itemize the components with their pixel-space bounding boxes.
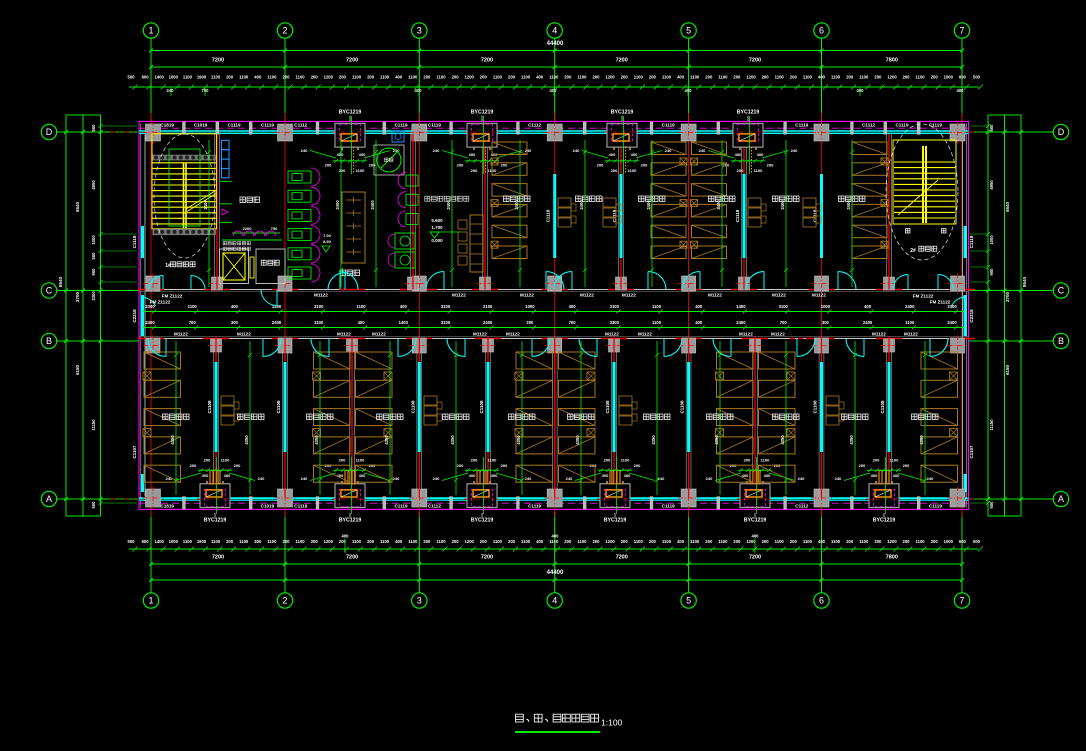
- svg-text:400: 400: [552, 534, 560, 539]
- svg-text:200: 200: [744, 458, 751, 463]
- svg-text:200: 200: [480, 539, 488, 544]
- svg-text:240: 240: [258, 476, 265, 481]
- svg-text:400: 400: [358, 320, 366, 325]
- svg-text:200: 200: [226, 75, 234, 80]
- svg-text:1100: 1100: [183, 75, 193, 80]
- svg-text:1100: 1100: [296, 539, 306, 544]
- svg-text:7200: 7200: [749, 555, 761, 561]
- svg-text:1: 1: [148, 26, 153, 36]
- svg-text:200: 200: [604, 458, 611, 463]
- svg-text:400: 400: [569, 304, 577, 309]
- svg-text:400: 400: [695, 304, 703, 309]
- svg-text:400: 400: [337, 473, 344, 478]
- svg-text:1400: 1400: [155, 75, 165, 80]
- svg-text:C1119: C1119: [929, 123, 942, 128]
- svg-text:1100: 1100: [690, 75, 700, 80]
- svg-text:2100: 2100: [483, 304, 493, 309]
- svg-text:200: 200: [641, 163, 648, 168]
- svg-text:7200: 7200: [616, 58, 628, 64]
- svg-text:C1119: C1119: [261, 123, 274, 128]
- svg-text:3100: 3100: [610, 304, 620, 309]
- svg-text:500: 500: [973, 75, 981, 80]
- svg-text:900: 900: [989, 268, 994, 276]
- svg-text:1100: 1100: [634, 75, 644, 80]
- svg-text:3: 3: [417, 26, 422, 36]
- svg-text:M1122: M1122: [580, 293, 594, 298]
- svg-text:200: 200: [339, 168, 346, 173]
- svg-text:4350: 4350: [714, 435, 719, 445]
- svg-text:M1122: M1122: [506, 332, 520, 337]
- svg-text:7200: 7200: [749, 58, 761, 64]
- svg-text:3100: 3100: [779, 304, 789, 309]
- svg-text:4: 4: [552, 26, 557, 36]
- svg-text:1200: 1200: [465, 75, 475, 80]
- svg-text:200: 200: [593, 539, 601, 544]
- svg-text:400: 400: [624, 473, 631, 478]
- svg-text:700: 700: [189, 320, 197, 325]
- svg-text:200: 200: [903, 539, 911, 544]
- svg-text:200: 200: [508, 75, 516, 80]
- svg-text:240: 240: [525, 148, 532, 153]
- svg-text:750: 750: [271, 226, 278, 231]
- svg-text:1100: 1100: [211, 75, 221, 80]
- svg-text:1200: 1200: [605, 539, 615, 544]
- svg-text:200: 200: [705, 539, 713, 544]
- svg-text:1100: 1100: [916, 75, 926, 80]
- svg-text:7200: 7200: [616, 555, 628, 561]
- svg-text:200: 200: [423, 539, 431, 544]
- svg-text:BYC1219: BYC1219: [737, 110, 760, 116]
- svg-text:C1118: C1118: [546, 209, 551, 222]
- svg-text:1200: 1200: [324, 539, 334, 544]
- svg-text:1900: 1900: [197, 75, 207, 80]
- svg-text:600: 600: [142, 75, 150, 80]
- svg-text:200: 200: [874, 75, 882, 80]
- svg-text:200: 200: [480, 75, 488, 80]
- svg-text:C1819: C1819: [160, 123, 174, 128]
- svg-text:1100: 1100: [859, 539, 869, 544]
- svg-text:2#: 2#: [910, 248, 916, 254]
- svg-text:1100: 1100: [267, 75, 277, 80]
- svg-text:300: 300: [822, 320, 830, 325]
- svg-text:1000: 1000: [989, 235, 994, 245]
- svg-text:200: 200: [737, 168, 744, 173]
- svg-text:4350: 4350: [575, 435, 580, 445]
- svg-text:M1122: M1122: [174, 332, 188, 337]
- svg-text:BYC1219: BYC1219: [873, 518, 896, 524]
- svg-text:7200: 7200: [346, 555, 358, 561]
- svg-text:200: 200: [452, 75, 460, 80]
- svg-text:M1122: M1122: [314, 293, 328, 298]
- svg-text:2300: 2300: [91, 291, 96, 301]
- svg-text:1100: 1100: [628, 168, 637, 173]
- svg-text:1:100: 1:100: [601, 718, 623, 728]
- svg-text:400: 400: [893, 473, 900, 478]
- svg-text:400: 400: [757, 152, 764, 157]
- svg-text:200: 200: [234, 463, 241, 468]
- svg-text:200: 200: [204, 458, 211, 463]
- svg-text:2400: 2400: [863, 320, 873, 325]
- svg-text:1100: 1100: [859, 75, 869, 80]
- svg-text:400: 400: [469, 473, 476, 478]
- svg-text:1100: 1100: [352, 539, 362, 544]
- svg-text:1200: 1200: [746, 75, 756, 80]
- svg-text:1100: 1100: [521, 75, 531, 80]
- svg-text:A: A: [1058, 494, 1064, 504]
- svg-text:4350: 4350: [384, 435, 389, 445]
- svg-text:400: 400: [359, 152, 366, 157]
- svg-text:C1108: C1108: [207, 400, 212, 414]
- svg-text:1000: 1000: [525, 304, 535, 309]
- svg-text:1400: 1400: [736, 304, 746, 309]
- svg-text:1100: 1100: [634, 539, 644, 544]
- svg-text:200: 200: [526, 320, 534, 325]
- svg-text:300: 300: [231, 320, 239, 325]
- svg-text:1100: 1100: [652, 320, 662, 325]
- svg-text:7200: 7200: [212, 58, 224, 64]
- svg-text:1100: 1100: [436, 75, 446, 80]
- svg-text:1100: 1100: [803, 539, 813, 544]
- svg-text:400: 400: [395, 75, 403, 80]
- svg-text:4350: 4350: [780, 435, 785, 445]
- svg-text:200: 200: [190, 463, 197, 468]
- svg-text:BYC1219: BYC1219: [471, 518, 494, 524]
- svg-text:8540: 8540: [1022, 276, 1027, 287]
- svg-text:2300: 2300: [145, 304, 155, 309]
- svg-text:200: 200: [311, 539, 319, 544]
- svg-text:C1107: C1107: [969, 445, 974, 459]
- svg-text:1400: 1400: [155, 539, 165, 544]
- svg-text:1100: 1100: [621, 458, 630, 463]
- svg-text:500: 500: [989, 124, 994, 132]
- svg-text:1200: 1200: [887, 75, 897, 80]
- svg-text:M1122: M1122: [520, 293, 534, 298]
- svg-text:200: 200: [339, 75, 347, 80]
- svg-text:5: 5: [686, 596, 691, 606]
- svg-text:200: 200: [762, 75, 770, 80]
- svg-text:200: 200: [767, 163, 774, 168]
- svg-text:8540: 8540: [58, 276, 63, 287]
- svg-text:D: D: [1058, 127, 1065, 137]
- svg-text:BYC1219: BYC1219: [204, 518, 227, 524]
- svg-text:M1122: M1122: [772, 293, 786, 298]
- svg-text:1100: 1100: [408, 75, 418, 80]
- svg-text:1100: 1100: [357, 304, 367, 309]
- svg-text:200: 200: [931, 539, 939, 544]
- svg-text:1100: 1100: [652, 304, 662, 309]
- svg-text:200: 200: [564, 75, 572, 80]
- svg-text:4350: 4350: [849, 435, 854, 445]
- svg-text:7200: 7200: [481, 58, 493, 64]
- svg-text:500: 500: [91, 252, 96, 260]
- svg-text:1100: 1100: [549, 539, 559, 544]
- svg-text:4350: 4350: [651, 435, 656, 445]
- svg-text:1100: 1100: [662, 539, 672, 544]
- svg-text:C1119: C1119: [662, 504, 675, 509]
- svg-text:BYC1219: BYC1219: [471, 110, 494, 116]
- svg-text:400: 400: [491, 473, 498, 478]
- svg-text:3100: 3100: [441, 320, 451, 325]
- svg-text:2400: 2400: [446, 200, 451, 210]
- svg-text:4350: 4350: [919, 435, 924, 445]
- svg-text:2: 2: [282, 26, 287, 36]
- svg-text:400: 400: [871, 473, 878, 478]
- svg-text:200: 200: [325, 163, 332, 168]
- svg-text:200: 200: [733, 539, 741, 544]
- svg-text:200: 200: [790, 75, 798, 80]
- svg-text:240: 240: [573, 148, 580, 153]
- svg-text:1100: 1100: [690, 539, 700, 544]
- svg-text:6540: 6540: [1005, 201, 1010, 212]
- svg-text:3100: 3100: [441, 304, 451, 309]
- svg-text:2700: 2700: [1005, 291, 1010, 302]
- svg-text:500: 500: [91, 501, 96, 509]
- svg-text:900: 900: [91, 268, 96, 276]
- svg-text:1100: 1100: [831, 75, 841, 80]
- svg-text:400: 400: [735, 152, 742, 157]
- svg-text:44400: 44400: [547, 570, 564, 576]
- svg-text:M1122: M1122: [605, 332, 619, 337]
- svg-text:7800: 7800: [886, 555, 898, 561]
- svg-text:240: 240: [393, 476, 400, 481]
- svg-text:200: 200: [471, 168, 478, 173]
- svg-text:240: 240: [927, 476, 934, 481]
- svg-text:C1119: C1119: [428, 123, 441, 128]
- svg-text:2400: 2400: [905, 304, 915, 309]
- svg-text:400: 400: [224, 473, 231, 478]
- svg-text:400: 400: [631, 152, 638, 157]
- svg-text:1100: 1100: [356, 458, 365, 463]
- svg-text:C1108: C1108: [276, 400, 281, 414]
- svg-text:11150: 11150: [989, 419, 994, 431]
- svg-text:200: 200: [903, 75, 911, 80]
- svg-text:1100: 1100: [493, 75, 503, 80]
- svg-text:C1112: C1112: [862, 123, 875, 128]
- svg-text:200: 200: [367, 539, 375, 544]
- svg-text:6540: 6540: [75, 201, 80, 212]
- svg-text:BYC1219: BYC1219: [744, 518, 767, 524]
- svg-text:1100: 1100: [267, 539, 277, 544]
- svg-text:6: 6: [819, 596, 824, 606]
- svg-text:200: 200: [471, 458, 478, 463]
- svg-text:1100: 1100: [221, 458, 230, 463]
- svg-text:500: 500: [989, 501, 994, 509]
- svg-text:1100: 1100: [239, 75, 249, 80]
- svg-text:M1122: M1122: [739, 332, 753, 337]
- svg-text:6150: 6150: [75, 364, 80, 375]
- svg-text:C1119: C1119: [227, 123, 240, 128]
- svg-text:C1119: C1119: [929, 504, 942, 509]
- svg-text:6150: 6150: [1005, 364, 1010, 375]
- svg-text:1200: 1200: [887, 539, 897, 544]
- svg-text:200: 200: [762, 539, 770, 544]
- svg-text:240: 240: [791, 148, 798, 153]
- svg-text:M1122: M1122: [904, 332, 918, 337]
- svg-text:1400: 1400: [399, 320, 409, 325]
- svg-text:400: 400: [254, 539, 262, 544]
- svg-text:C1112: C1112: [795, 504, 808, 509]
- svg-text:BYC1219: BYC1219: [604, 518, 627, 524]
- svg-text:200: 200: [931, 75, 939, 80]
- svg-text:1100: 1100: [183, 539, 193, 544]
- svg-text:400: 400: [202, 473, 209, 478]
- svg-text:200: 200: [508, 539, 516, 544]
- svg-text:1000: 1000: [944, 75, 954, 80]
- svg-text:C: C: [46, 286, 53, 296]
- svg-text:M1122: M1122: [638, 332, 652, 337]
- svg-text:600: 600: [142, 539, 150, 544]
- svg-text:1100: 1100: [493, 539, 503, 544]
- svg-text:1100: 1100: [356, 168, 365, 173]
- svg-text:M1122: M1122: [771, 332, 785, 337]
- svg-text:M1122: M1122: [872, 332, 886, 337]
- svg-text:200: 200: [457, 463, 464, 468]
- svg-text:2400: 2400: [514, 200, 519, 210]
- svg-text:500: 500: [128, 75, 136, 80]
- svg-text:C1107: C1107: [132, 445, 137, 459]
- svg-text:7200: 7200: [346, 58, 358, 64]
- svg-text:400: 400: [469, 152, 476, 157]
- svg-text:1100: 1100: [718, 539, 728, 544]
- svg-text:7200: 7200: [212, 555, 224, 561]
- svg-text:BYC1219: BYC1219: [339, 110, 362, 116]
- svg-text:200: 200: [790, 539, 798, 544]
- svg-text:C1112: C1112: [528, 123, 541, 128]
- svg-text:400: 400: [609, 152, 616, 157]
- svg-text:2: 2: [282, 596, 287, 606]
- svg-text:240: 240: [301, 148, 308, 153]
- svg-text:700: 700: [569, 320, 577, 325]
- svg-text:C1019: C1019: [261, 504, 275, 509]
- svg-text:M1122: M1122: [337, 332, 351, 337]
- svg-text:400: 400: [231, 304, 239, 309]
- svg-text:D: D: [46, 127, 53, 137]
- svg-text:C1118: C1118: [969, 235, 974, 248]
- svg-text:200: 200: [846, 539, 854, 544]
- svg-text:400: 400: [602, 473, 609, 478]
- svg-text:M1122: M1122: [812, 293, 826, 298]
- svg-text:A: A: [46, 494, 52, 504]
- svg-text:1.700: 1.700: [431, 225, 443, 230]
- svg-text:1: 1: [148, 596, 153, 606]
- svg-text:C1119: C1119: [662, 123, 675, 128]
- svg-text:7.00: 7.00: [323, 233, 332, 238]
- svg-text:200: 200: [705, 75, 713, 80]
- svg-text:1200: 1200: [465, 539, 475, 544]
- svg-text:200: 200: [457, 163, 464, 168]
- svg-text:200: 200: [634, 463, 641, 468]
- svg-text:240: 240: [301, 476, 308, 481]
- svg-text:200: 200: [311, 75, 319, 80]
- svg-text:1100: 1100: [314, 320, 324, 325]
- svg-text:500: 500: [973, 539, 981, 544]
- svg-text:400: 400: [864, 304, 872, 309]
- svg-text:C1108: C1108: [410, 400, 415, 414]
- svg-text:400: 400: [254, 75, 262, 80]
- svg-text:200: 200: [903, 463, 910, 468]
- svg-text:7200: 7200: [481, 555, 493, 561]
- svg-text:400: 400: [536, 539, 544, 544]
- svg-text:4350: 4350: [170, 435, 175, 445]
- svg-text:2400: 2400: [370, 200, 375, 210]
- svg-text:C1819: C1819: [160, 504, 174, 509]
- svg-text:C1019: C1019: [194, 123, 208, 128]
- svg-text:1#: 1#: [165, 263, 171, 269]
- svg-text:C: C: [1058, 286, 1065, 296]
- svg-text:4350: 4350: [244, 435, 249, 445]
- svg-text:C1108: C1108: [680, 400, 685, 414]
- svg-text:FM Z1122: FM Z1122: [930, 300, 951, 305]
- svg-text:1100: 1100: [352, 75, 362, 80]
- svg-text:C1119: C1119: [294, 504, 307, 509]
- svg-text:1000: 1000: [169, 75, 179, 80]
- svg-text:8.90: 8.90: [323, 239, 332, 244]
- svg-text:240: 240: [433, 148, 440, 153]
- svg-text:M1122: M1122: [473, 332, 487, 337]
- svg-text:7: 7: [959, 26, 964, 36]
- svg-text:200: 200: [621, 539, 629, 544]
- svg-text:C1108: C1108: [605, 400, 610, 414]
- svg-text:400: 400: [677, 539, 685, 544]
- svg-text:44400: 44400: [547, 41, 564, 47]
- svg-text:C2218: C2218: [969, 309, 974, 323]
- svg-text:2400: 2400: [716, 200, 721, 210]
- svg-text:400: 400: [395, 539, 403, 544]
- svg-text:C1112: C1112: [428, 504, 441, 509]
- svg-text:M1122: M1122: [622, 293, 636, 298]
- svg-text:400: 400: [400, 304, 408, 309]
- svg-text:3: 3: [417, 596, 422, 606]
- svg-text:1100: 1100: [188, 304, 198, 309]
- svg-text:400: 400: [818, 75, 826, 80]
- svg-text:1100: 1100: [831, 539, 841, 544]
- svg-text:400: 400: [764, 473, 771, 478]
- svg-text:400: 400: [342, 534, 350, 539]
- svg-text:2400: 2400: [272, 320, 282, 325]
- svg-text:500: 500: [128, 539, 136, 544]
- svg-text:240: 240: [835, 476, 842, 481]
- svg-text:2400: 2400: [646, 200, 651, 210]
- svg-text:2400: 2400: [846, 200, 851, 210]
- svg-text:3300: 3300: [610, 320, 620, 325]
- svg-text:200: 200: [369, 163, 376, 168]
- svg-text:200: 200: [501, 463, 508, 468]
- svg-text:400: 400: [359, 473, 366, 478]
- svg-text:200: 200: [611, 168, 618, 173]
- svg-text:C1108: C1108: [880, 400, 885, 414]
- svg-text:1200: 1200: [605, 75, 615, 80]
- svg-text:C1118: C1118: [735, 209, 740, 222]
- svg-text:1100: 1100: [239, 539, 249, 544]
- svg-text:400: 400: [550, 88, 558, 93]
- svg-text:7: 7: [959, 596, 964, 606]
- svg-text:240: 240: [798, 476, 805, 481]
- svg-text:2200: 2200: [243, 226, 253, 231]
- svg-text:1100: 1100: [211, 539, 221, 544]
- svg-text:200: 200: [649, 539, 657, 544]
- svg-text:4350: 4350: [314, 435, 319, 445]
- svg-text:240: 240: [566, 476, 573, 481]
- svg-text:200: 200: [423, 75, 431, 80]
- svg-text:1000: 1000: [944, 539, 954, 544]
- svg-text:FM Z1122: FM Z1122: [913, 294, 934, 299]
- svg-text:1100: 1100: [577, 75, 587, 80]
- svg-text:200: 200: [593, 75, 601, 80]
- svg-text:M1122: M1122: [372, 332, 386, 337]
- svg-text:11150: 11150: [91, 419, 96, 431]
- svg-text:1100: 1100: [905, 320, 915, 325]
- svg-text:200: 200: [649, 75, 657, 80]
